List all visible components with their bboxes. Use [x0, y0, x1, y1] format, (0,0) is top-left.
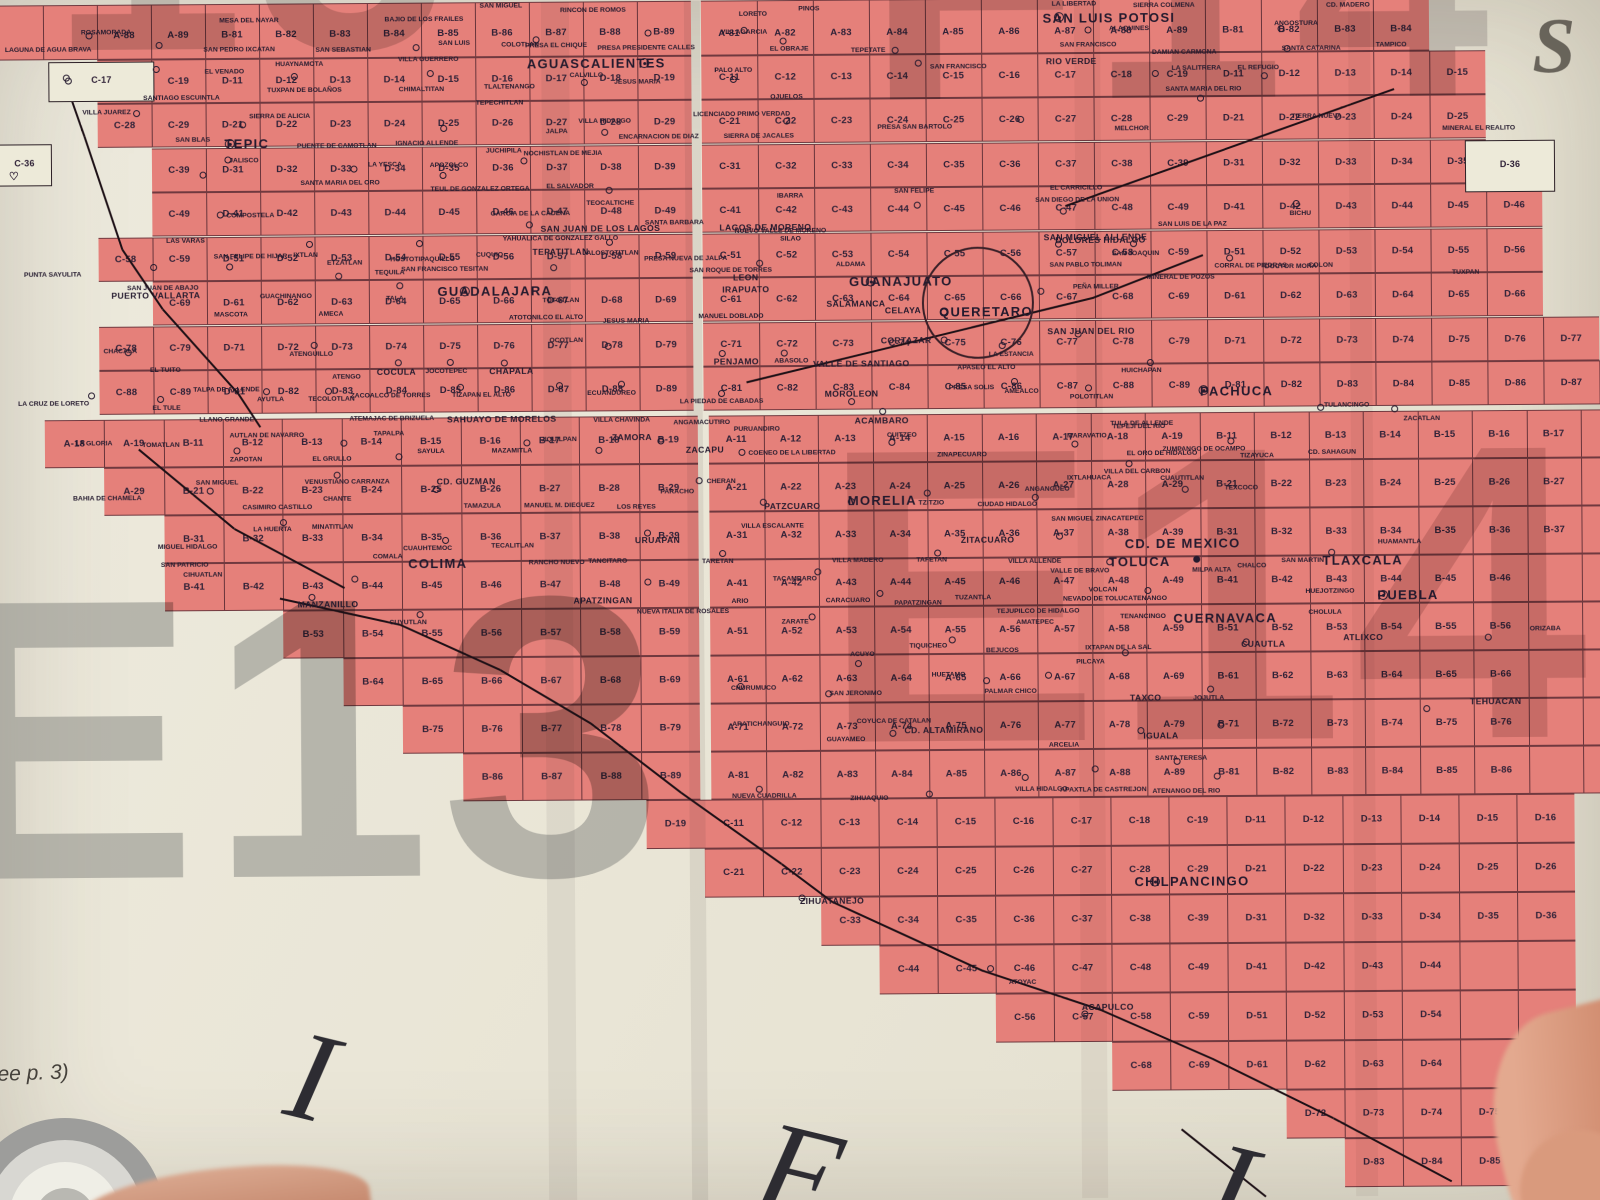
place-label: QUERETARO: [939, 304, 1033, 320]
town-marker: [433, 486, 440, 493]
town-marker: [926, 791, 933, 798]
town-marker: [156, 42, 163, 49]
grid-cell-label: C-46: [1000, 203, 1021, 214]
place-label: EL REFUGIO: [1238, 64, 1279, 71]
place-label: ARCELIA: [1049, 742, 1079, 749]
grid-line: [1486, 229, 1487, 271]
place-label: EL TUITO: [150, 367, 181, 374]
grid-line: [1170, 1042, 1171, 1089]
grid-line: [422, 147, 423, 189]
grid-cell-label: D-52: [1304, 1010, 1325, 1021]
place-label: TAMPICO: [1376, 41, 1407, 48]
place-label: CD. SAHAGUN: [1308, 449, 1356, 456]
place-label: VILLA ESCALANTE: [741, 522, 804, 529]
place-label: TUZANTLA: [955, 594, 991, 601]
watermark-zone-letter: F14: [865, 0, 1500, 120]
place-label: HUEJOTZINGO: [1305, 588, 1354, 595]
town-marker: [738, 449, 745, 456]
place-label: ATENANGO DEL RIO: [1152, 788, 1220, 795]
grid-line: [520, 418, 521, 464]
place-label: RINCON DE ROMOS: [560, 7, 626, 14]
place-label: JUCHIPILA: [486, 147, 522, 154]
grid-line: [1517, 941, 1518, 988]
town-marker: [737, 683, 744, 690]
town-marker: [207, 488, 214, 495]
grid-cell-label: C-89: [170, 387, 191, 398]
town-marker: [395, 453, 402, 460]
town-marker: [924, 490, 931, 497]
place-label: TEUL DE GONZALEZ ORTEGA: [431, 185, 530, 193]
place-label: SANTA TERESA: [1155, 755, 1207, 762]
town-marker: [1137, 727, 1144, 734]
place-label: IBARRA: [777, 192, 803, 199]
grid-line: [423, 325, 424, 367]
grid-cell-label: C-88: [116, 387, 137, 398]
town-marker: [601, 129, 608, 136]
town-marker: [1054, 12, 1064, 22]
grid-line: [461, 466, 462, 512]
town-marker: [1130, 240, 1137, 247]
town-marker: [350, 166, 357, 173]
town-marker: [1197, 95, 1204, 102]
grid-line: [1430, 229, 1431, 271]
town-marker: [940, 308, 947, 315]
town-marker: [987, 965, 994, 972]
grid-cell-label: C-32: [775, 161, 796, 172]
place-label: JOCOTEPEC: [425, 368, 467, 375]
grid-cell-label: C-69: [1168, 291, 1189, 302]
grid-line: [1459, 844, 1460, 891]
grid-cell-label: D-66: [1504, 288, 1525, 299]
place-label: NUEVO VALLE DE MORENO: [735, 227, 827, 235]
grid-line: [1319, 274, 1320, 316]
grid-line: [1374, 185, 1375, 227]
grid-cell-label: D-85: [1479, 1156, 1500, 1167]
grid-cell-label: C-53: [832, 249, 853, 260]
grid-line: [757, 56, 758, 98]
grid-line: [937, 897, 938, 944]
grid-cell-label: C-56: [1014, 1012, 1035, 1023]
town-marker: [719, 550, 726, 557]
grid-cell-label: D-69: [655, 294, 676, 305]
place-label: TEPEJI DEL RIO: [1112, 423, 1165, 430]
town-marker: [855, 660, 862, 667]
town-marker: [1060, 208, 1067, 215]
place-label: BEJUCOS: [986, 647, 1019, 654]
grid-line: [1459, 893, 1460, 940]
grid-line: [995, 847, 996, 894]
place-label: CALVILLO: [570, 72, 604, 79]
place-label: PUERTO VALLARTA: [111, 290, 200, 301]
grid-cell-label: D-55: [1448, 245, 1469, 256]
grid-line: [1038, 232, 1039, 274]
grid-line: [475, 58, 476, 100]
town-marker: [756, 786, 763, 793]
grid-cell-label: D-61: [1247, 1059, 1268, 1070]
grid-cell-label: D-29: [654, 116, 675, 127]
grid-line: [1285, 943, 1286, 990]
grid-line: [1460, 1040, 1461, 1087]
grid-line: [223, 468, 224, 514]
grid-line: [153, 327, 154, 369]
grid-cell-label: D-76: [493, 340, 514, 351]
grid-line: [1038, 187, 1039, 229]
place-label: TAMAZULA: [464, 503, 501, 510]
town-marker: [1391, 405, 1398, 412]
town-marker: [983, 677, 990, 684]
grid-cell-label: D-32: [276, 164, 297, 175]
town-marker: [395, 359, 402, 366]
town-marker: [125, 349, 132, 356]
grid-cell-label: D-43: [331, 208, 352, 219]
town-marker: [781, 350, 788, 357]
place-label: IGUALA: [1143, 730, 1178, 740]
grid-cell-label: D-74: [385, 341, 406, 352]
grid-cell-label: B-15: [420, 436, 441, 447]
grid-line: [579, 418, 580, 464]
grid-cell-label: A-51: [727, 626, 748, 637]
grid-line: [639, 368, 640, 410]
place-label: ATENGO: [332, 374, 361, 381]
town-marker: [150, 264, 157, 271]
town-marker: [1126, 460, 1133, 467]
grid-line: [152, 238, 153, 280]
place-label: CASIMIRO CASTILLO: [242, 504, 312, 511]
grid-cell-label: C-59: [169, 254, 190, 265]
ocean-letter: I: [274, 1000, 350, 1153]
place-label: TIZAYUCA: [1240, 452, 1274, 459]
place-label: BICHU: [1290, 210, 1312, 217]
map-sheet: A-88A-89B-81B-82B-83B-84B-85B-86B-87B-88…: [0, 0, 1600, 1200]
grid-cell-label: C-34: [897, 915, 918, 926]
grid-line: [1375, 274, 1376, 316]
grid-line: [1430, 184, 1431, 226]
inset-cell: D-36: [1465, 140, 1555, 193]
town-marker: [501, 360, 508, 367]
town-marker: [263, 388, 270, 395]
grid-cell-label: C-39: [168, 165, 189, 176]
place-label: PATZCUARO: [764, 501, 820, 511]
grid-cell-label: D-79: [655, 339, 676, 350]
place-label: CORRAL DE PIEDRAS: [1214, 262, 1286, 270]
place-label: ALDAMA: [836, 261, 866, 268]
place-label: ZUMPANGO DE OCAMPO: [1162, 445, 1245, 453]
grid-cell-label: B-88: [599, 27, 620, 38]
place-label: CHACALA: [103, 348, 137, 355]
grid-cell-label: D-25: [1477, 862, 1498, 873]
grid-cell-label: D-31: [1245, 912, 1266, 923]
place-label: SANTA MARIA DEL ORO: [300, 179, 379, 187]
town-marker: [1207, 686, 1214, 693]
place-label: SAN PATRICIO: [161, 562, 209, 569]
place-label: CD. GUZMAN: [437, 476, 496, 486]
grid-cell-label: C-23: [839, 866, 860, 877]
town-marker: [1174, 758, 1181, 765]
grid-cell-label: D-44: [1420, 960, 1441, 971]
grid-cell-label: C-82: [777, 383, 798, 394]
grid-line: [460, 418, 461, 464]
grid-line: [937, 946, 938, 993]
watermark-zone-letter: E14: [819, 424, 1599, 765]
town-marker: [848, 498, 855, 505]
grid-line: [369, 370, 370, 412]
town-marker: [915, 60, 922, 67]
town-marker: [447, 359, 454, 366]
grid-cell-label: A-32: [781, 529, 802, 540]
place-label: LICENCIADO PRIMO VERDAD: [693, 111, 790, 119]
grid-cell-label: D-52: [1280, 246, 1301, 257]
grid-cell-label: D-62: [1280, 290, 1301, 301]
place-label: TANCITARO: [588, 558, 627, 565]
place-label: CUYUTLAN: [389, 619, 426, 626]
town-marker: [153, 66, 160, 73]
place-label: JESUS MARIA: [614, 78, 661, 85]
grid-cell-label: D-45: [439, 207, 460, 218]
grid-line: [926, 233, 927, 275]
grid-cell-label: A-82: [774, 28, 795, 39]
grid-line: [1039, 276, 1040, 318]
place-label: DAMIAN CARMONA: [1152, 49, 1217, 56]
place-label: JESUS MARIA: [603, 318, 650, 325]
island-icon: ♡: [9, 170, 19, 183]
grid-cell-label: C-46: [1014, 963, 1035, 974]
town-marker: [888, 439, 895, 446]
place-label: SAN FRANCISCO TESITAN: [401, 266, 488, 274]
place-label: COMALA: [373, 553, 403, 560]
place-label: SIERRA COLMENA: [1133, 2, 1195, 9]
grid-line: [1151, 320, 1152, 362]
grid-line: [814, 189, 815, 231]
town-marker: [520, 157, 527, 164]
place-label: TOLUCA: [1109, 554, 1171, 569]
grid-cell-label: D-64: [1392, 289, 1413, 300]
grid-cell-label: D-75: [1448, 334, 1469, 345]
place-label: VILLA ALLENDE: [1008, 558, 1061, 565]
place-label: EL GRULLO: [312, 456, 351, 463]
place-label: CUERNAVACA: [1173, 610, 1277, 626]
grid-line: [223, 420, 224, 466]
place-label: CD. ALTAMIRANO: [904, 725, 983, 736]
grid-cell-label: C-68: [1112, 291, 1133, 302]
place-label: HUAMANTLA: [1378, 538, 1421, 545]
place-label: HUAYNAMOTA: [275, 61, 323, 68]
grid-cell-label: C-33: [839, 915, 860, 926]
town-marker: [719, 350, 726, 357]
grid-line: [814, 145, 815, 187]
grid-line: [1344, 992, 1345, 1039]
grid-line: [476, 191, 477, 233]
grid-line: [368, 237, 369, 279]
grid-cell-label: C-77: [1056, 337, 1077, 348]
grid-line: [638, 146, 639, 188]
place-label: PINOS: [798, 5, 819, 12]
town-marker: [1328, 549, 1335, 556]
grid-cell-label: D-34: [1419, 911, 1440, 922]
town-marker: [730, 76, 737, 83]
place-label: TUXPAN: [1452, 269, 1480, 276]
place-label: SAN MIGUEL: [196, 479, 239, 486]
grid-line: [639, 324, 640, 366]
place-label: ZIHUAQUIO: [850, 795, 888, 802]
grid-line: [1344, 1090, 1345, 1137]
grid-cell-label: D-71: [1224, 335, 1245, 346]
town-marker: [876, 590, 883, 597]
town-marker: [1147, 359, 1154, 366]
town-marker: [889, 730, 896, 737]
town-marker: [639, 58, 649, 68]
zone-line: [1204, 0, 1206, 52]
town-marker: [1423, 705, 1430, 712]
grid-cell-label: D-36: [1535, 910, 1556, 921]
town-marker: [1106, 558, 1113, 565]
grid-cell-label: D-26: [492, 117, 513, 128]
grid-cell-label: D-73: [331, 342, 352, 353]
grid-cell-label: C-79: [169, 343, 190, 354]
town-marker: [1277, 25, 1284, 32]
town-marker: [814, 568, 821, 575]
inset-cell-label: C-36: [14, 158, 34, 168]
grid-line: [1150, 186, 1151, 228]
grid-line: [261, 282, 262, 324]
grid-line: [1431, 273, 1432, 315]
town-marker: [595, 447, 602, 454]
town-marker: [949, 636, 956, 643]
place-label: IRAPUATO: [722, 284, 769, 294]
place-label: TOMATLAN: [142, 442, 180, 449]
grid-line: [1401, 942, 1402, 989]
grid-cell-label: C-58: [1130, 1011, 1151, 1022]
grid-line: [1054, 994, 1055, 1041]
place-label: TAXCO: [1130, 692, 1162, 702]
place-label: BAJIO DE LOS FRAILES: [384, 16, 463, 24]
grid-line: [475, 3, 476, 56]
place-label: ARATICHANGUIO: [732, 721, 789, 728]
town-marker: [756, 260, 763, 267]
inset-cell: C-36♡: [0, 144, 52, 186]
page-note: (see p. 3): [0, 1060, 69, 1087]
place-label: VALLE DE SANTIAGO: [813, 358, 909, 369]
grid-cell-label: D-68: [601, 295, 622, 306]
town-marker: [1199, 385, 1209, 395]
town-marker: [645, 30, 652, 37]
town-marker: [892, 47, 899, 54]
grid-cell-label: C-48: [1130, 962, 1151, 973]
grid-line: [765, 656, 766, 702]
place-label: SANTA MARIA DEL RIO: [1165, 85, 1241, 93]
town-marker: [225, 139, 235, 149]
grid-line: [1543, 318, 1544, 360]
grid-cell-label: C-61: [720, 294, 741, 305]
town-marker: [799, 894, 806, 901]
grid-cell-label: D-54: [1392, 245, 1413, 256]
grid-cell-label: A-22: [780, 481, 801, 492]
town-marker: [606, 187, 613, 194]
grid-cell-label: C-36: [1013, 914, 1034, 925]
grid-cell-label: A-82: [782, 769, 803, 780]
grid-line: [1286, 992, 1287, 1039]
grid-cell-label: B-16: [479, 436, 500, 447]
grid-cell-label: B-13: [301, 437, 322, 448]
grid-line: [585, 324, 586, 366]
grid-line: [1262, 186, 1263, 228]
place-label: SAN ROQUE DE TORRES: [689, 267, 772, 275]
place-label: MIGUEL HIDALGO: [158, 544, 218, 551]
grid-line: [763, 849, 764, 896]
town-marker: [657, 437, 664, 444]
town-marker: [1261, 72, 1268, 79]
place-label: JALISCO: [229, 157, 259, 164]
grid-cell-label: C-12: [781, 817, 802, 828]
place-label: LA HUERTA: [253, 526, 292, 533]
place-label: TACAMBARO: [773, 575, 817, 582]
town-marker: [416, 240, 423, 247]
place-label: GUADALAJARA: [437, 283, 552, 299]
grid-cell-label: C-43: [832, 204, 853, 215]
town-marker: [914, 202, 921, 209]
town-marker: [217, 212, 224, 219]
town-marker: [460, 286, 470, 296]
town-marker: [1144, 587, 1151, 594]
grid-line: [520, 466, 521, 512]
place-label: TEPECHITLAN: [476, 99, 524, 106]
town-marker: [417, 611, 424, 618]
grid-cell-label: C-24: [897, 866, 918, 877]
grid-cell-label: C-62: [776, 294, 797, 305]
grid-cell-label: D-77: [1560, 333, 1581, 344]
place-label: VILLA HIDALGO: [578, 118, 631, 125]
grid-line: [995, 896, 996, 943]
place-label: TEXCOCO: [1224, 484, 1258, 491]
grid-line: [766, 752, 767, 798]
place-label: SAN LUIS: [438, 40, 470, 47]
grid-line: [1169, 895, 1170, 942]
place-label: SAN BLAS: [175, 137, 210, 144]
place-label: PRESA SAN BARTOLO: [877, 123, 952, 131]
place-label: GUACHINANGO: [260, 293, 312, 300]
place-label: ZIHUATANEJO: [800, 896, 864, 906]
town-marker: [526, 221, 533, 228]
grid-line: [1517, 843, 1518, 890]
town-marker: [941, 336, 948, 343]
place-label: CARACUARO: [826, 597, 871, 604]
place-label: CHALCO: [1237, 562, 1266, 569]
grid-cell-label: D-24: [1419, 862, 1440, 873]
town-marker: [848, 398, 855, 405]
grid-line: [1343, 845, 1344, 892]
grid-line: [530, 102, 531, 144]
town-marker: [1284, 45, 1291, 52]
town-marker: [440, 172, 447, 179]
place-label: PUENTE DE CAMOTLAN: [297, 142, 377, 150]
grid-cell-label: C-38: [1129, 913, 1150, 924]
grid-line: [1344, 1041, 1345, 1088]
town-marker: [644, 579, 651, 586]
grid-line: [1039, 321, 1040, 363]
place-label: ZAPOTAN: [230, 456, 262, 463]
place-label: PALO ALTO: [714, 67, 752, 74]
grid-cell-label: D-39: [654, 161, 675, 172]
place-label: LA YESCA: [368, 161, 402, 168]
place-label: LA ESTANCIA: [989, 351, 1034, 358]
grid-cell-label: C-59: [1188, 1011, 1209, 1022]
grid-cell-label: D-38: [600, 162, 621, 173]
place-label: MANZANILLO: [298, 599, 359, 609]
place-label: CORTAZAR: [881, 335, 932, 345]
place-label: AUTLAN DE NAVARRO: [230, 432, 305, 440]
grid-cell-label: A-52: [781, 625, 802, 636]
town-marker: [606, 239, 613, 246]
inset-cell: C-17: [48, 61, 154, 102]
